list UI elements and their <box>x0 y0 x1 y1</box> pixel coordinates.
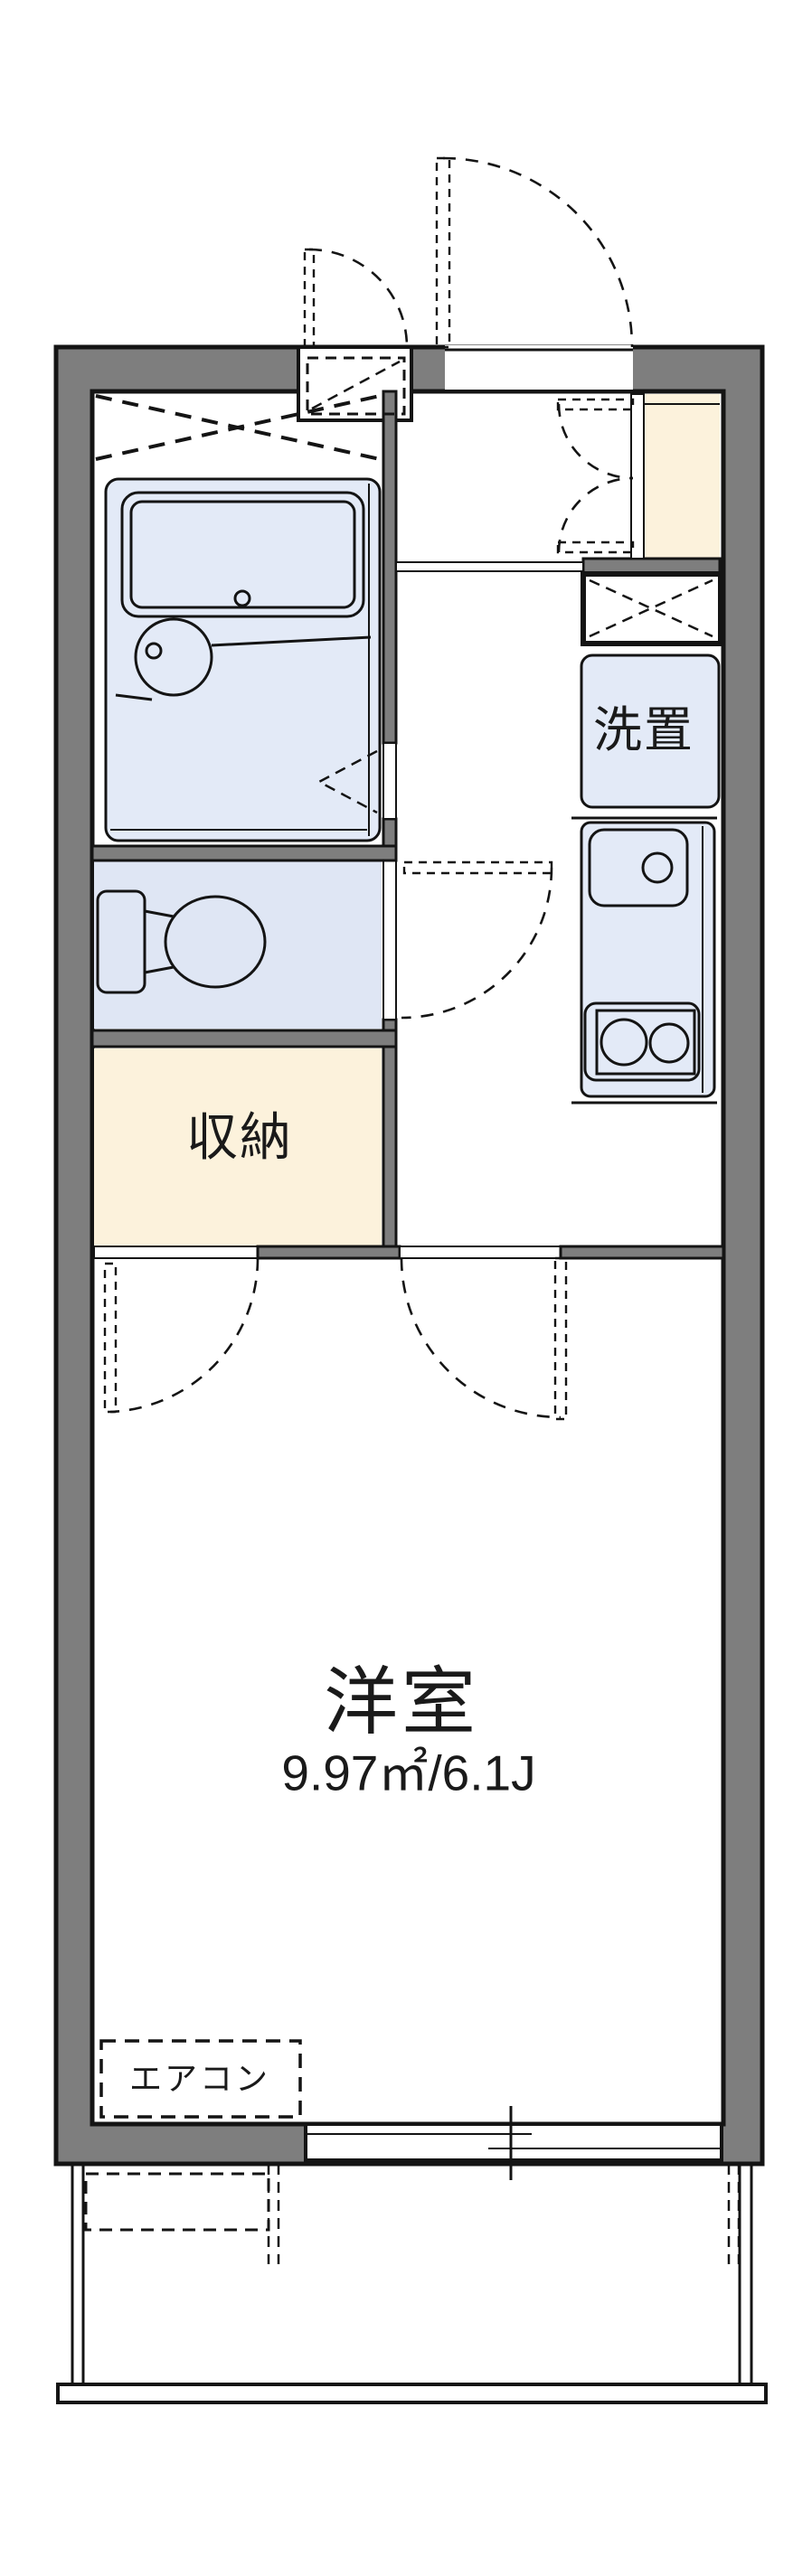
storage-label: 収納 <box>186 1113 293 1164</box>
balcony-railing <box>58 2384 766 2402</box>
toilet-bowl <box>165 897 265 987</box>
hall-divider-line <box>396 562 583 571</box>
room-name-label: 洋室 <box>324 1666 479 1740</box>
entrance-door <box>437 158 632 347</box>
outdoor-unit-space <box>86 2174 269 2230</box>
laundry-label: 洗置 <box>593 706 694 755</box>
meter-box-door <box>305 249 407 347</box>
balcony <box>58 2164 766 2402</box>
sink-faucet <box>643 853 672 882</box>
kitchen <box>571 818 717 1103</box>
balcony-partition-right <box>729 2164 739 2264</box>
genkan-floor <box>644 394 720 559</box>
aircon-label: エアコン <box>129 2063 270 2095</box>
closet-opening <box>94 1246 258 1258</box>
room-door-opening <box>400 1246 561 1258</box>
washbasin <box>136 619 212 695</box>
balcony-left-edge <box>72 2164 83 2384</box>
balcony-right-edge <box>740 2164 751 2384</box>
genkan-step <box>631 394 644 559</box>
floor-plan-drawing <box>0 0 812 2576</box>
bathtub <box>122 493 364 616</box>
toilet-tank <box>98 891 145 992</box>
entrance-opening <box>445 345 633 390</box>
balcony-partition-left <box>269 2164 279 2264</box>
pipe-space <box>583 574 721 644</box>
floor-plan: 洗置 収納 洋室 9.97㎡/6.1J エアコン <box>0 0 812 2576</box>
room-area-label: 9.97㎡/6.1J <box>281 1749 535 1799</box>
